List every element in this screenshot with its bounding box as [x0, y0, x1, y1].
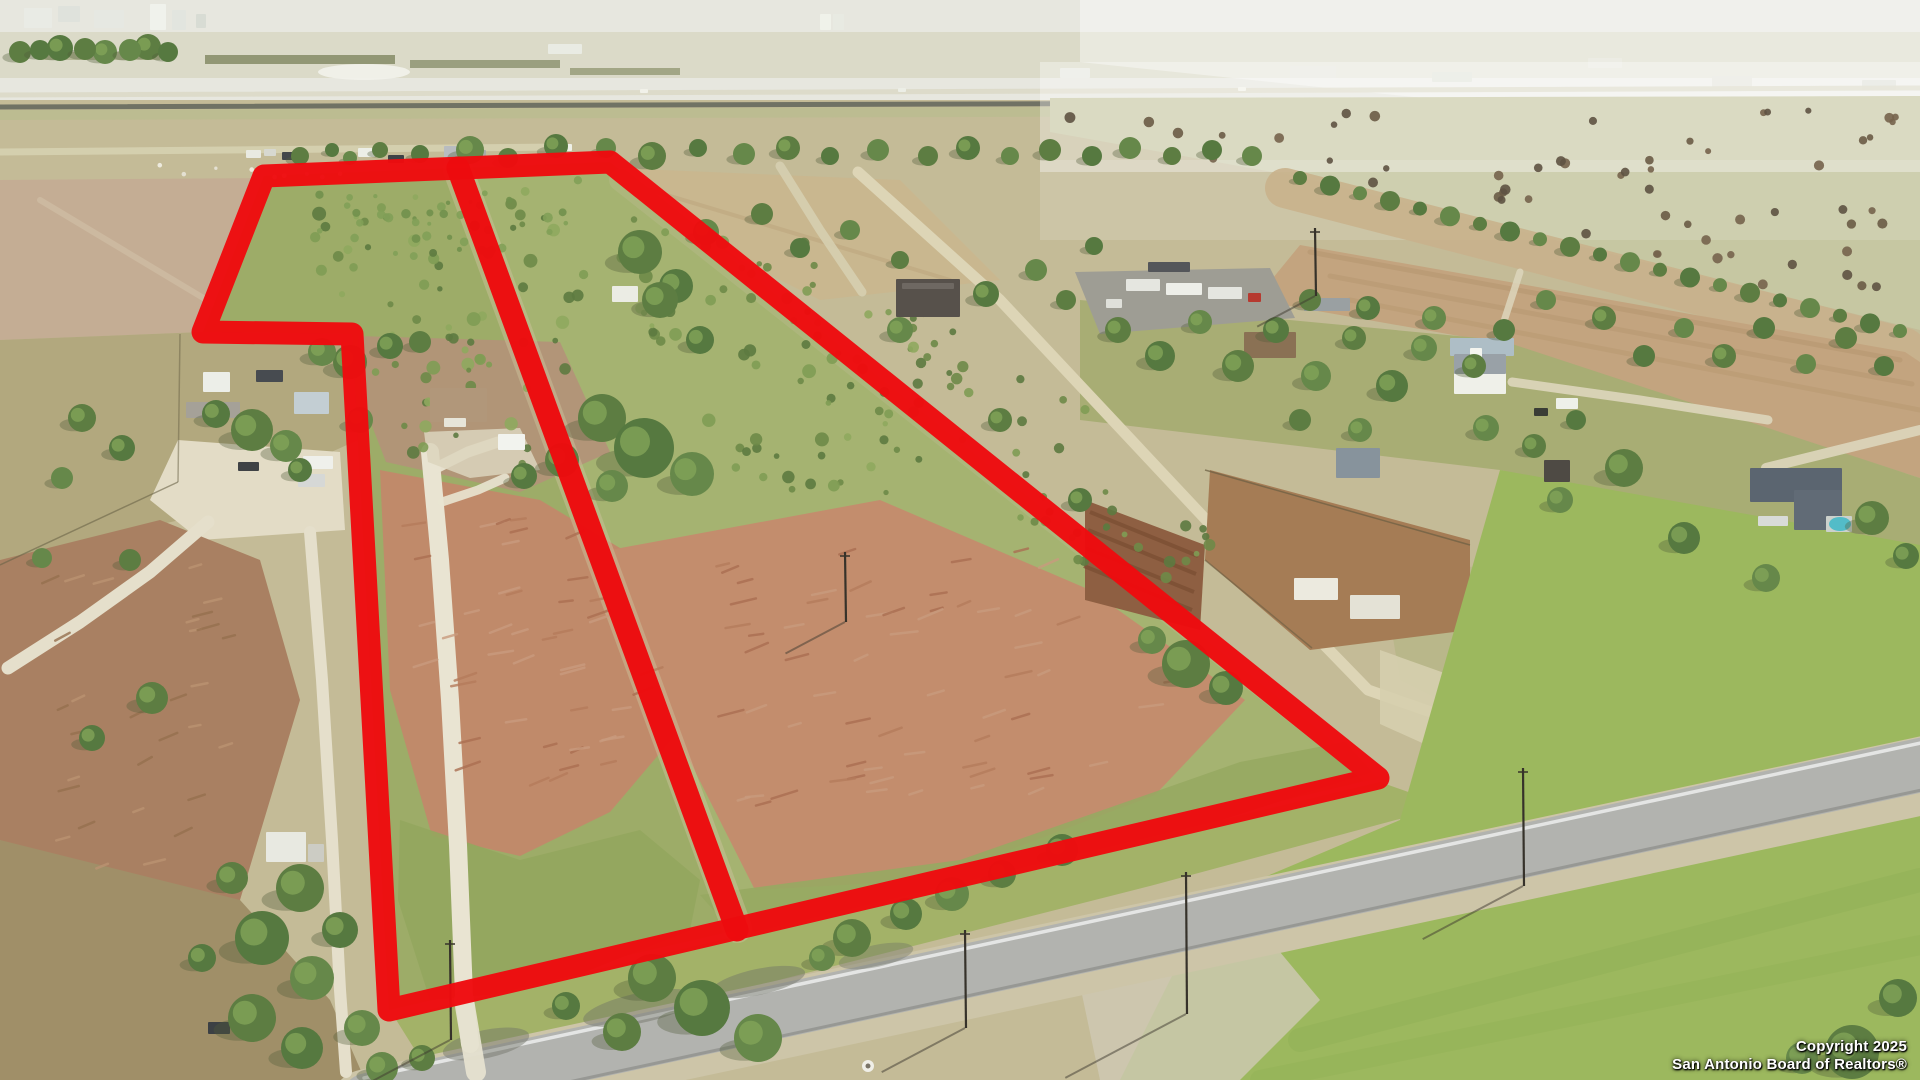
copyright-watermark: Copyright 2025 San Antonio Board of Real…: [1672, 1038, 1907, 1073]
mid-barn: [896, 279, 960, 317]
gray-shed: [1336, 448, 1380, 478]
orchard-band-1: [205, 55, 395, 64]
driveway-road-apron: [464, 1000, 476, 1072]
aerial-photo: Copyright 2025 San Antonio Board of Real…: [0, 0, 1920, 1080]
orchard-band-3: [570, 68, 680, 75]
white-lagoon: [318, 64, 410, 80]
gazebo: [1544, 460, 1570, 482]
copyright-line1: Copyright 2025: [1672, 1038, 1907, 1056]
copyright-line2: San Antonio Board of Realtors®: [1672, 1056, 1907, 1074]
water-meter-lid: [866, 1064, 871, 1069]
aerial-photo-scene: [0, 0, 1920, 1080]
orchard-band-2: [410, 60, 560, 68]
